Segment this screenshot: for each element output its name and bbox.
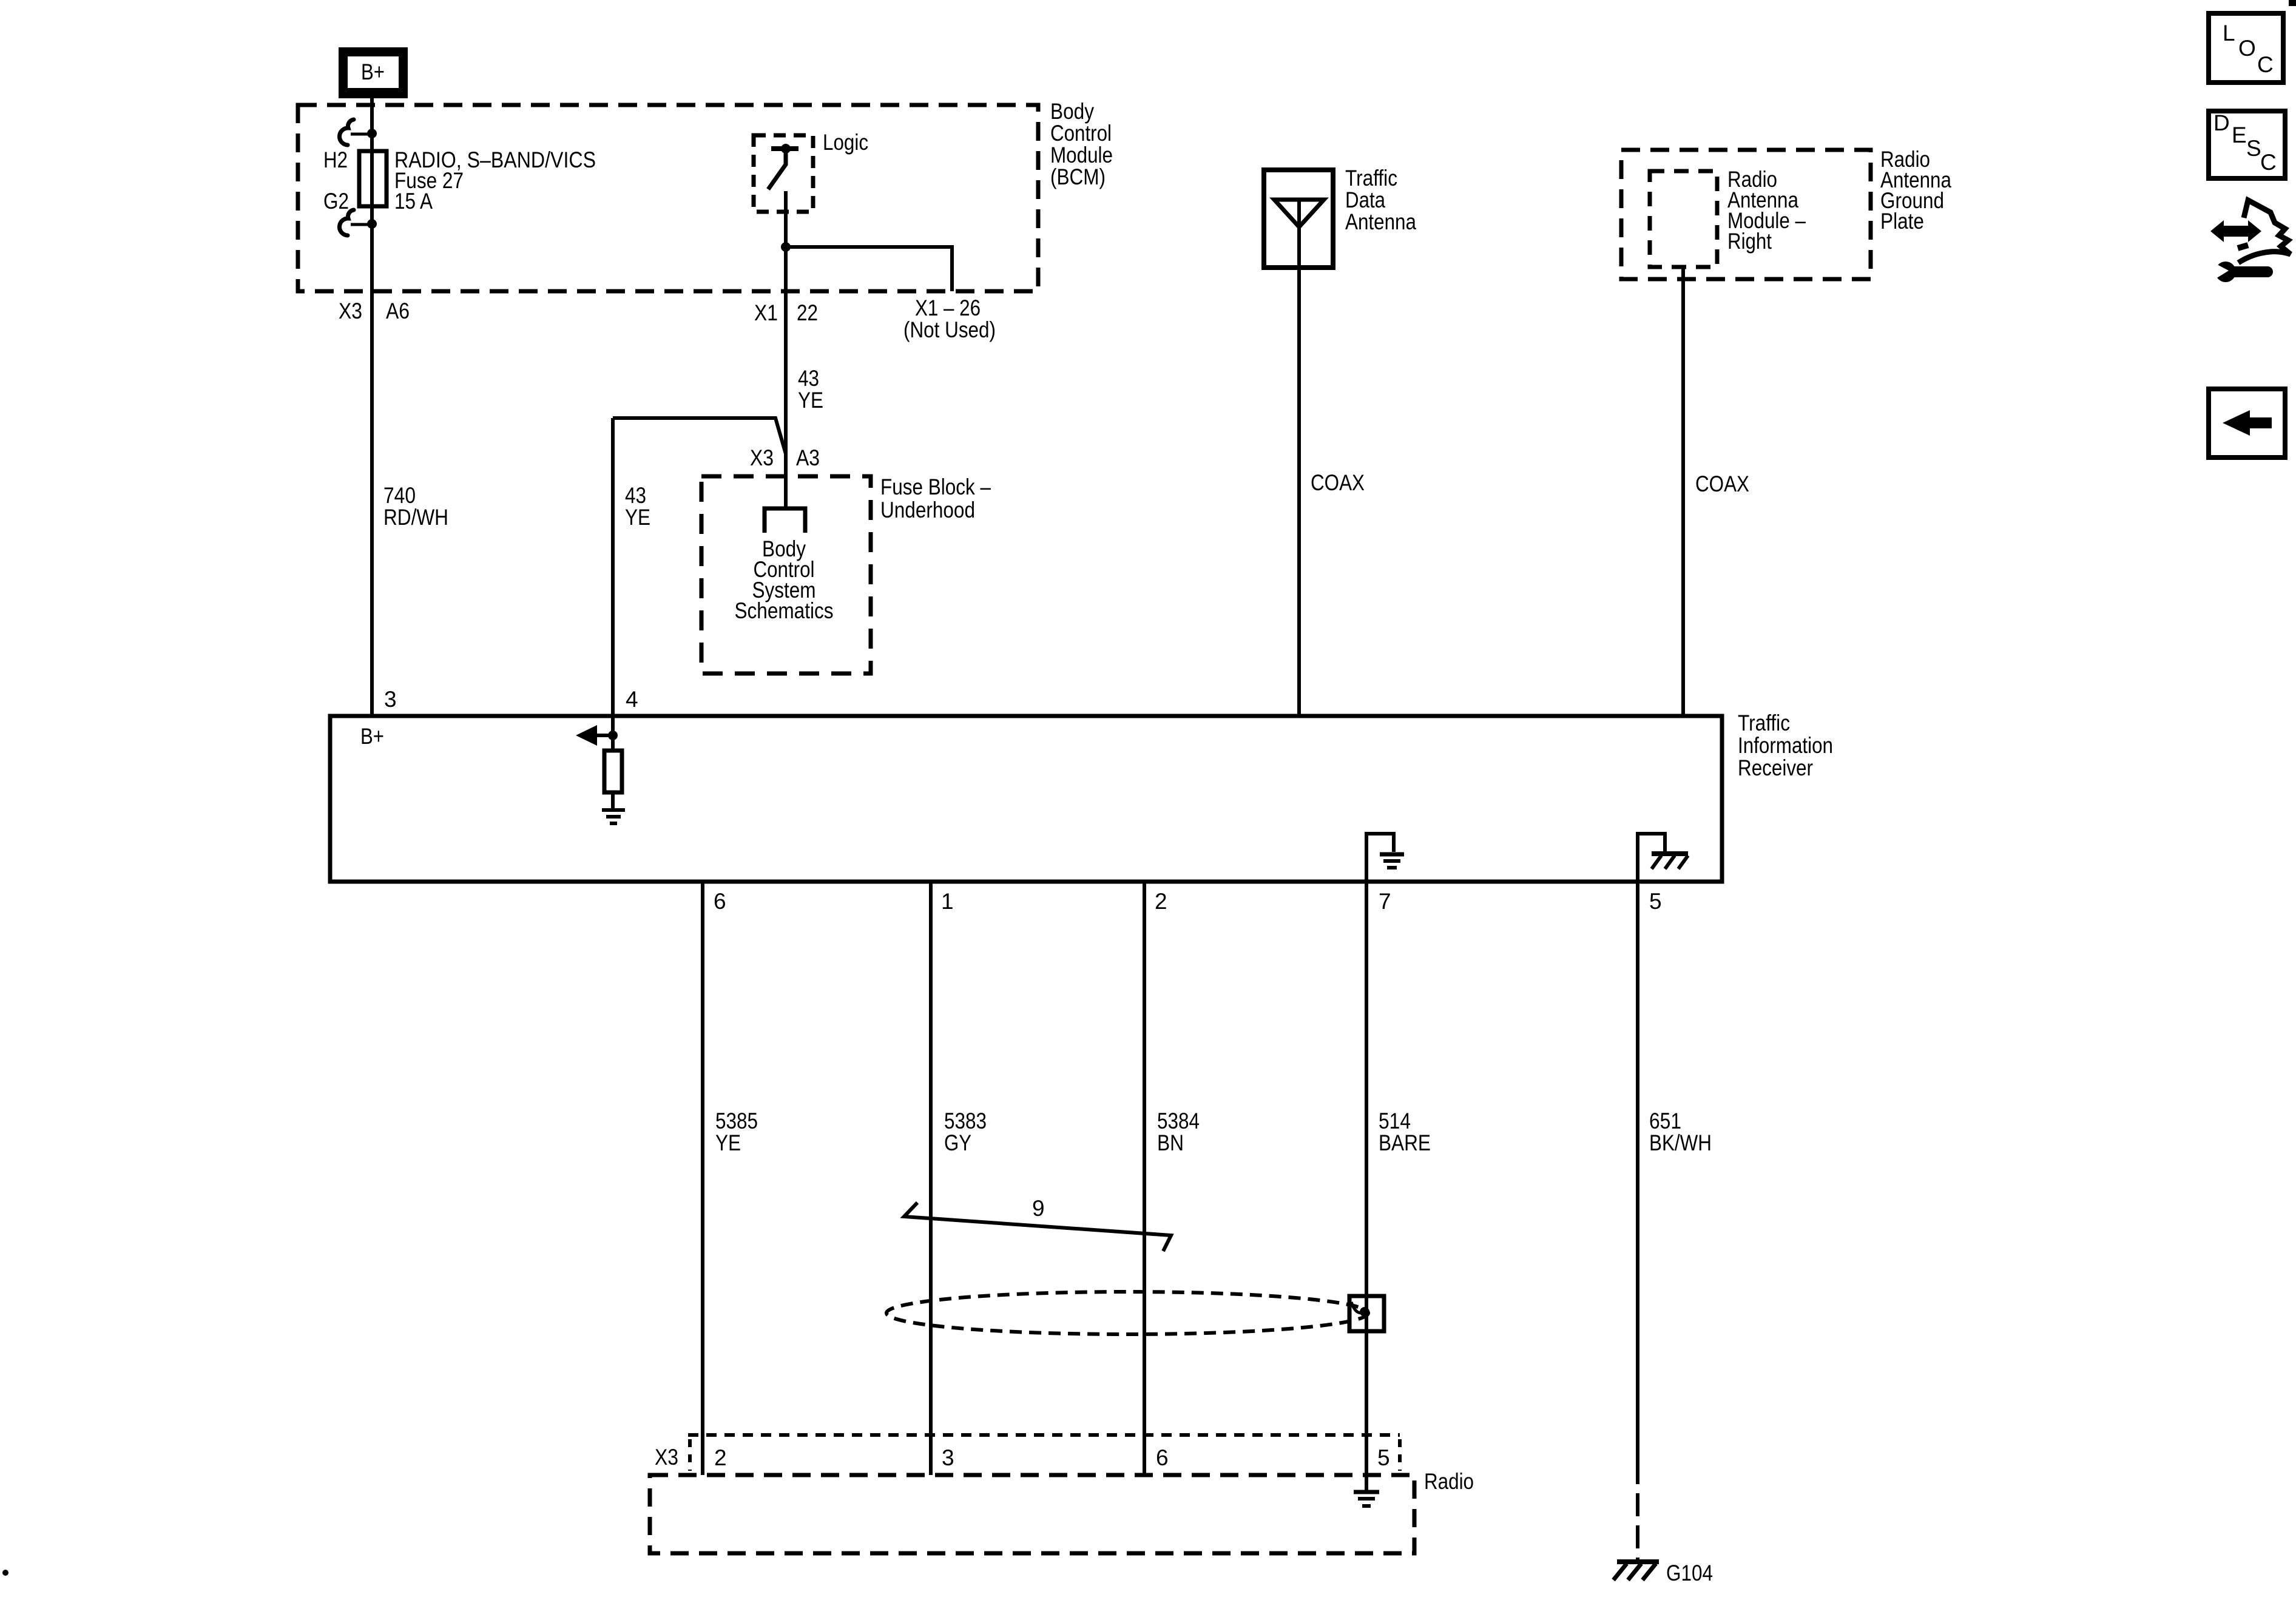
svg-text:43: 43	[625, 483, 646, 508]
svg-text:Schematics: Schematics	[735, 598, 834, 623]
svg-text:2: 2	[1155, 889, 1167, 914]
svg-text:43: 43	[798, 366, 819, 391]
svg-text:5384: 5384	[1157, 1109, 1200, 1133]
svg-text:651: 651	[1649, 1109, 1681, 1133]
svg-text:22: 22	[797, 300, 818, 325]
svg-text:X3: X3	[339, 299, 362, 323]
svg-text:Radio: Radio	[1424, 1469, 1474, 1494]
svg-text:YE: YE	[625, 505, 650, 530]
svg-text:E: E	[2232, 123, 2247, 147]
svg-text:O: O	[2238, 36, 2256, 61]
svg-text:RD/WH: RD/WH	[383, 505, 448, 530]
svg-text:6: 6	[1156, 1445, 1169, 1470]
svg-text:C: C	[2260, 150, 2277, 175]
svg-text:Right: Right	[1727, 229, 1772, 254]
svg-text:9: 9	[1032, 1196, 1045, 1221]
svg-text:7: 7	[1379, 889, 1391, 914]
svg-text:D: D	[2213, 110, 2230, 135]
svg-text:G2: G2	[323, 189, 349, 214]
svg-text:(BCM): (BCM)	[1050, 164, 1106, 189]
svg-text:A3: A3	[796, 445, 820, 470]
svg-text:6: 6	[714, 889, 726, 914]
svg-text:3: 3	[942, 1445, 954, 1470]
svg-text:Control: Control	[1050, 121, 1112, 146]
svg-text:COAX: COAX	[1311, 470, 1365, 495]
svg-text:S: S	[2246, 136, 2261, 161]
svg-text:Antenna: Antenna	[1345, 209, 1416, 234]
svg-text:514: 514	[1379, 1109, 1411, 1133]
svg-text:4: 4	[626, 687, 638, 712]
svg-text:X3: X3	[655, 1445, 678, 1470]
svg-text:X1 – 26: X1 – 26	[915, 295, 981, 320]
svg-text:Logic: Logic	[823, 130, 868, 155]
svg-text:5385: 5385	[715, 1109, 758, 1133]
svg-text:Receiver: Receiver	[1738, 755, 1813, 780]
svg-text:2: 2	[714, 1445, 727, 1470]
svg-text:COAX: COAX	[1695, 471, 1749, 496]
svg-text:Underhood: Underhood	[880, 498, 975, 522]
svg-text:5: 5	[1377, 1445, 1390, 1470]
svg-text:Information: Information	[1738, 733, 1833, 758]
svg-text:(Not Used): (Not Used)	[903, 317, 996, 342]
svg-text:X3: X3	[750, 445, 774, 470]
svg-text:5383: 5383	[944, 1109, 987, 1133]
svg-text:B+: B+	[361, 59, 385, 84]
svg-text:15 A: 15 A	[394, 189, 433, 214]
svg-text:B+: B+	[360, 724, 384, 749]
svg-text:Module: Module	[1050, 143, 1113, 167]
svg-text:X1: X1	[754, 300, 778, 325]
svg-text:Fuse Block –: Fuse Block –	[880, 474, 991, 499]
svg-text:Body: Body	[1050, 99, 1094, 124]
svg-text:3: 3	[384, 687, 397, 712]
svg-text:BK/WH: BK/WH	[1649, 1130, 1712, 1155]
svg-text:Plate: Plate	[1880, 209, 1924, 234]
svg-text:5: 5	[1649, 889, 1662, 914]
svg-text:GY: GY	[944, 1130, 971, 1155]
svg-text:C: C	[2257, 52, 2274, 77]
svg-text:Traffic: Traffic	[1345, 166, 1397, 191]
svg-text:H2: H2	[323, 147, 348, 172]
svg-text:G104: G104	[1666, 1561, 1713, 1585]
svg-text:1: 1	[941, 889, 954, 914]
svg-text:A6: A6	[386, 299, 410, 323]
svg-text:YE: YE	[715, 1130, 741, 1155]
svg-text:YE: YE	[798, 388, 823, 413]
svg-text:BARE: BARE	[1379, 1130, 1431, 1155]
svg-text:L: L	[2223, 21, 2235, 46]
svg-text:Traffic: Traffic	[1738, 711, 1790, 735]
svg-text:BN: BN	[1157, 1130, 1184, 1155]
svg-text:740: 740	[383, 483, 416, 508]
svg-text:Data: Data	[1345, 187, 1385, 212]
